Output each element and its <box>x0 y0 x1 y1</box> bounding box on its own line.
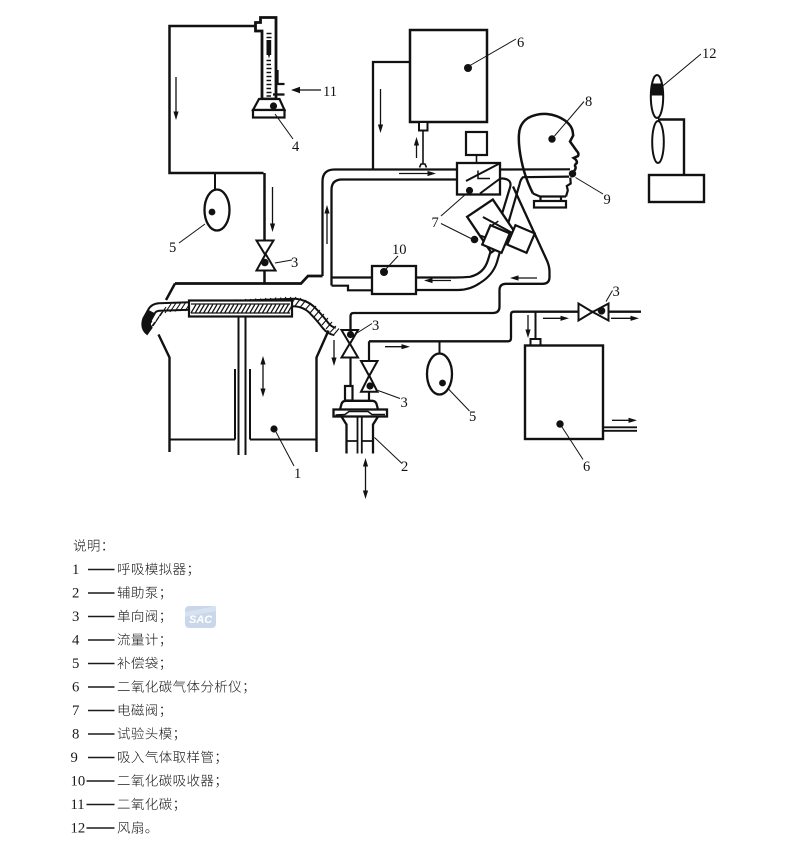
svg-text:12: 12 <box>702 46 717 62</box>
svg-text:7: 7 <box>72 703 79 719</box>
svg-text:8: 8 <box>585 94 592 110</box>
svg-text:3: 3 <box>401 395 408 411</box>
svg-text:10: 10 <box>71 774 86 790</box>
svg-text:1: 1 <box>72 562 79 578</box>
svg-text:12: 12 <box>71 821 86 837</box>
svg-text:3: 3 <box>613 284 620 300</box>
svg-text:5: 5 <box>169 240 176 256</box>
svg-text:6: 6 <box>517 35 524 51</box>
svg-text:6: 6 <box>583 459 590 475</box>
svg-text:4: 4 <box>72 633 80 649</box>
svg-text:3: 3 <box>72 609 79 625</box>
svg-text:11: 11 <box>323 84 337 100</box>
svg-text:3: 3 <box>291 255 298 271</box>
svg-text:3: 3 <box>372 318 379 334</box>
svg-text:10: 10 <box>392 242 407 258</box>
svg-text:1: 1 <box>294 466 301 482</box>
svg-text:2: 2 <box>401 459 408 475</box>
svg-text:6: 6 <box>72 680 79 696</box>
svg-text:5: 5 <box>469 409 476 425</box>
svg-text:5: 5 <box>72 656 79 672</box>
svg-text:8: 8 <box>72 727 79 743</box>
svg-text:2: 2 <box>72 586 79 602</box>
svg-text:9: 9 <box>604 192 611 208</box>
svg-text:4: 4 <box>292 139 300 155</box>
svg-text:11: 11 <box>71 797 85 813</box>
svg-text:9: 9 <box>71 750 78 766</box>
svg-text:7: 7 <box>432 215 439 231</box>
svg-text:SAC: SAC <box>189 614 213 626</box>
